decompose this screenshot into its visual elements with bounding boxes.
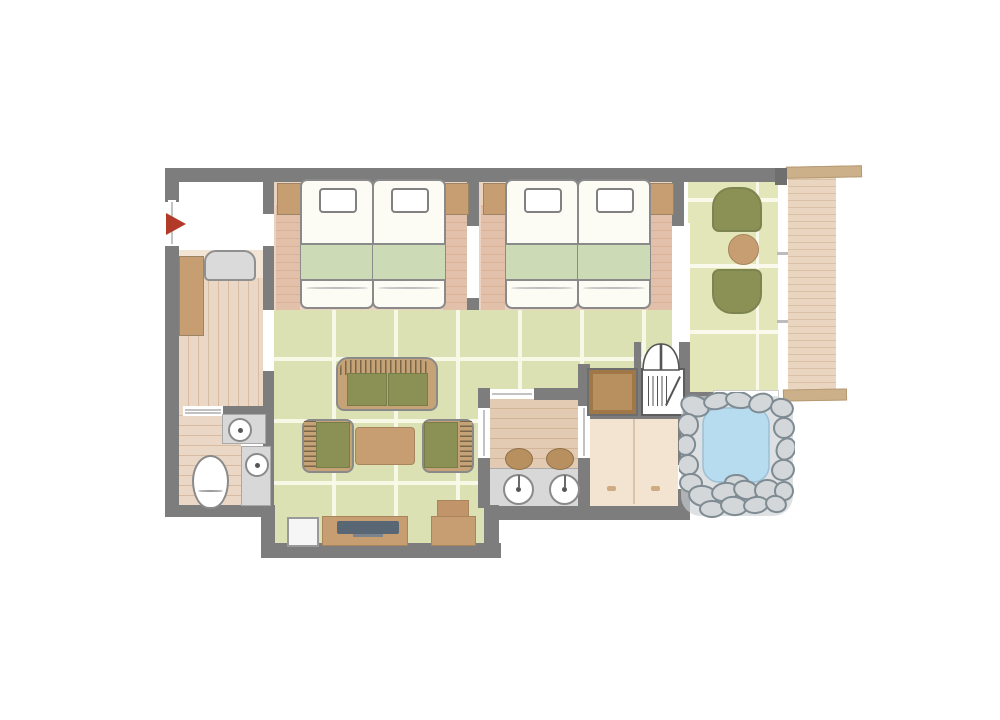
round-table: [728, 234, 759, 265]
bath-water: [703, 408, 769, 482]
lounge-chair-top: [712, 187, 762, 232]
wash-basin-panel: [241, 446, 271, 506]
changing-door-handle: [651, 486, 660, 491]
armchair-wicker-side: [460, 421, 472, 467]
vanity-stool: [546, 448, 574, 470]
armchair-cushion: [424, 422, 458, 468]
hand-basin: [228, 418, 252, 442]
faucet: [518, 475, 520, 488]
window-strip-tick1: [777, 252, 788, 255]
hand-basin: [245, 453, 269, 477]
bed: [505, 179, 579, 309]
bedroom2-carpet-band-left: [481, 205, 505, 310]
side-cabinet: [431, 516, 476, 546]
changing-door-handle: [607, 486, 616, 491]
vanity-basin: [503, 474, 534, 505]
wall-bottom-left: [165, 505, 275, 517]
exterior-mask: [484, 520, 696, 546]
entrance-bench: [204, 250, 256, 281]
wall-bed-divider-stub: [467, 298, 479, 310]
blanket: [373, 243, 445, 281]
toilet-door-track: [183, 406, 223, 416]
blanket: [578, 243, 650, 281]
bed-foldline: [378, 287, 440, 289]
wall-washroom-left-a: [478, 388, 490, 408]
bedroom2-carpet-band-right: [648, 205, 672, 310]
wall-entrance-right-a: [263, 168, 274, 214]
toilet-seat-line: [198, 490, 223, 492]
toilet: [192, 455, 229, 509]
bed: [372, 179, 446, 309]
wall-top-endcap: [775, 168, 787, 185]
faucet: [564, 475, 566, 488]
blanket: [506, 243, 578, 281]
rock-bath: [679, 392, 795, 519]
sofa: [336, 357, 438, 411]
tatami-washroom-door: [478, 408, 490, 458]
vanity-basin: [549, 474, 580, 505]
sofa-cushion: [347, 373, 387, 406]
window-strip-tick2: [777, 320, 788, 323]
wall-midcolumn-b: [578, 458, 590, 508]
storage-chest: [587, 368, 638, 416]
bed-foldline: [511, 287, 573, 289]
nightstand: [483, 183, 507, 215]
lounge-chair-bottom: [712, 269, 762, 314]
sofa-cushion: [388, 373, 428, 406]
pillow: [524, 188, 562, 213]
bedroom1-carpet-band-left: [276, 205, 300, 310]
coffee-table: [355, 427, 415, 465]
pillow: [319, 188, 357, 213]
wall-entrance-right-b: [263, 246, 274, 310]
shoe-cabinet: [179, 256, 204, 336]
floor-cushion-box: [287, 517, 319, 547]
floor-plan: [0, 0, 1000, 720]
bed-foldline: [306, 287, 368, 289]
wall-washroom-left-b: [478, 458, 490, 508]
armchair-right: [422, 419, 474, 473]
pillow: [596, 188, 634, 213]
drain-dot: [255, 463, 260, 468]
wall-left-upper: [165, 168, 179, 202]
washroom-top-door: [490, 389, 534, 399]
hand-basin-unit: [222, 414, 266, 444]
bedroom1-carpet-band-right: [443, 205, 467, 310]
changing-room-divider-line: [633, 414, 635, 504]
bed: [300, 179, 374, 309]
nightstand: [650, 183, 674, 215]
blanket: [301, 243, 373, 281]
nightstand: [445, 183, 469, 215]
wall-left-lower: [165, 246, 179, 517]
veranda-deck: [788, 177, 836, 389]
tv-stand: [353, 534, 383, 537]
wall-washroom-bottom: [484, 506, 690, 520]
bed: [577, 179, 651, 309]
entrance-flag-icon: [166, 213, 186, 235]
drain-dot: [238, 428, 243, 433]
bed-foldline: [583, 287, 645, 289]
veranda-deck-cap-top: [786, 165, 862, 179]
armchair-left: [302, 419, 354, 473]
pillow: [391, 188, 429, 213]
wall-washroom-top: [534, 388, 582, 400]
tv-cabinet: [322, 516, 408, 546]
armchair-wicker-side: [304, 421, 316, 467]
bedroom-divider-opening: [467, 212, 479, 310]
double-swing-door-icon: [641, 341, 681, 371]
armchair-cushion: [316, 422, 350, 468]
tv: [337, 521, 399, 534]
nightstand: [277, 183, 301, 215]
vanity-stool: [505, 448, 533, 470]
